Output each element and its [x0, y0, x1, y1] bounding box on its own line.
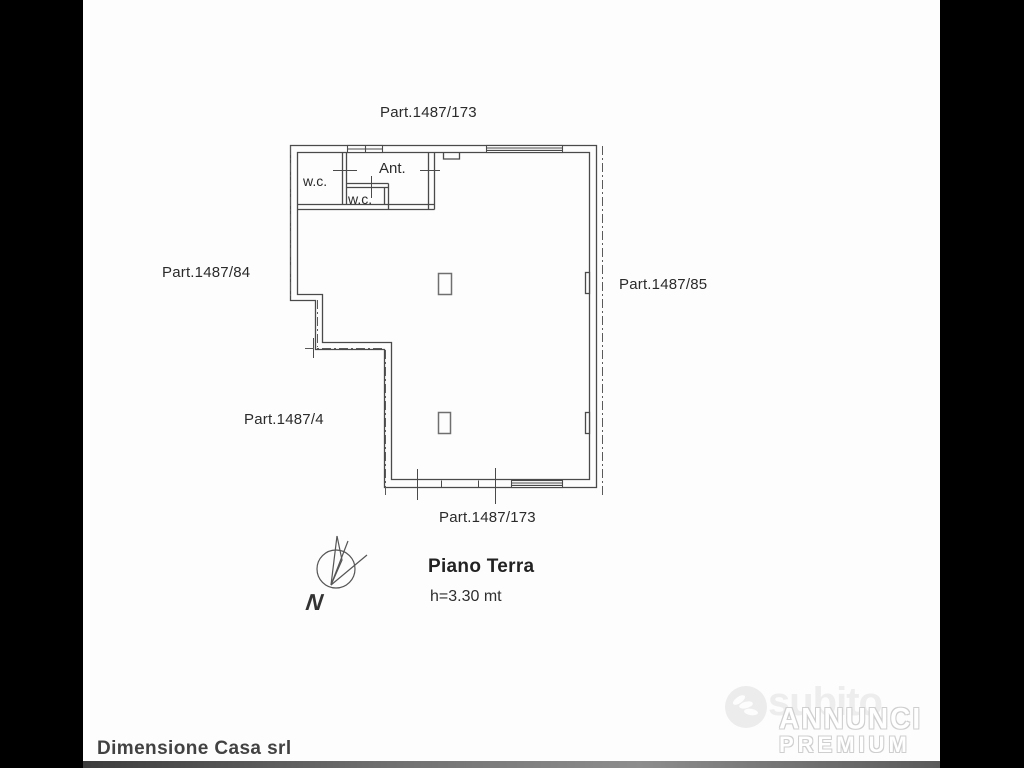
- bottom-edge-strip: [83, 761, 940, 768]
- agency-name: Dimensione Casa srl: [97, 738, 292, 760]
- window-bottom: [512, 481, 563, 488]
- room-label-wc-inner: w.c.: [348, 191, 372, 207]
- room-label-ant: Ant.: [379, 160, 406, 177]
- parcel-label-bottom-left: Part.1487/4: [244, 411, 324, 428]
- parcel-label-top: Part.1487/173: [380, 104, 477, 121]
- wall-ant-right: [429, 153, 435, 210]
- parcel-label-bottom: Part.1487/173: [439, 509, 536, 526]
- wall-outer: [291, 146, 597, 488]
- plan-title: Piano Terra: [428, 556, 534, 578]
- walls: [291, 146, 597, 488]
- pilaster-right-upper: [586, 273, 590, 294]
- compass-north-letter: N: [304, 589, 324, 616]
- pillar-lower: [439, 413, 451, 434]
- opening-ticks: [314, 171, 496, 505]
- subito-logo-icon: [725, 686, 767, 728]
- premium-badge-line2: PREMIUM: [779, 732, 911, 758]
- wall-inner: [298, 153, 590, 480]
- room-label-wc-left: w.c.: [303, 173, 327, 189]
- parcel-label-left: Part.1487/84: [162, 264, 250, 281]
- boundary-lines: [291, 146, 603, 498]
- wall-wc-ant: [343, 153, 347, 205]
- compass: [317, 536, 367, 588]
- pilaster-right-lower: [586, 413, 590, 434]
- window-top-right: [487, 146, 563, 153]
- floorplan-drawing: [0, 0, 1024, 768]
- pillar-upper: [439, 274, 452, 295]
- parcel-label-right: Part.1487/85: [619, 276, 707, 293]
- windows: [348, 146, 563, 488]
- screenshot-stage: Part.1487/173 Part.1487/84 Part.1487/85 …: [0, 0, 1024, 768]
- premium-badge-line1: ANNUNCI: [779, 702, 922, 736]
- entrance-notch: [444, 153, 460, 160]
- plan-height-note: h=3.30 mt: [430, 588, 502, 606]
- pillars: [439, 274, 452, 434]
